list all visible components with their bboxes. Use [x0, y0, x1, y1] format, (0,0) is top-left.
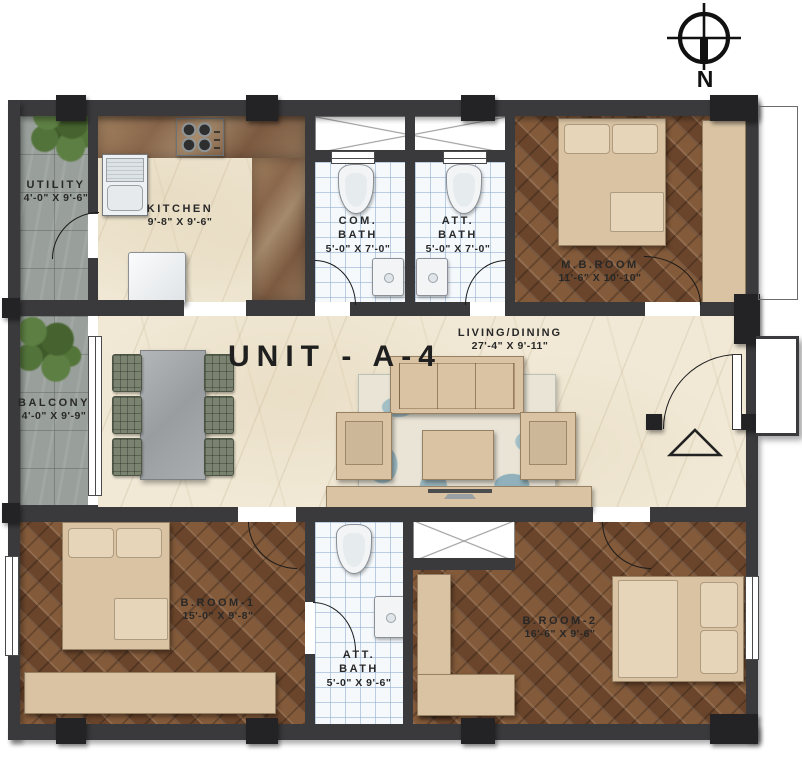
room-dims: 4'-0" X 9'-6": [10, 192, 102, 206]
mb-room-label: M.B.ROOM 11'-6" X 10'-10": [540, 258, 660, 286]
wall-column: [461, 718, 495, 744]
pillow: [564, 124, 610, 154]
wall-column: [56, 95, 86, 121]
dining-chair: [204, 396, 234, 434]
plant-icon: [10, 314, 84, 384]
dining-chair: [112, 396, 142, 434]
entry-arrow-icon: [666, 426, 724, 460]
wall: [8, 300, 98, 316]
room-dims: 9'-8" X 9'-6": [118, 216, 242, 230]
room-name: UTILITY: [10, 178, 102, 192]
room-name: B.ROOM-2: [505, 614, 615, 628]
room-name: BALCONY: [8, 396, 100, 410]
entry-door-leaf: [732, 354, 742, 430]
wall-column: [246, 718, 278, 744]
living-dining-label: LIVING/DINING 27'-4" X 9'-11": [430, 326, 590, 354]
wall: [246, 300, 306, 316]
window: [745, 576, 759, 660]
wall: [305, 522, 315, 602]
pillow: [116, 528, 162, 558]
wall: [505, 116, 515, 316]
wall-column: [246, 95, 278, 121]
wall: [515, 302, 645, 316]
pillow: [612, 124, 658, 154]
wash-basin-icon: [372, 258, 404, 296]
kitchen-label: KITCHEN 9'-8" X 9'-6": [118, 202, 242, 230]
wall: [88, 258, 98, 304]
wash-basin-icon: [374, 596, 406, 638]
dining-table: [140, 350, 206, 480]
window: [5, 556, 19, 656]
armchair: [520, 412, 576, 480]
exterior-projection: [758, 106, 798, 300]
wall: [650, 507, 746, 522]
dining-chair: [112, 438, 142, 476]
floor-plan: N UTILITY 4'-0" X 9'-6" KITCHEN 9'-8" X …: [0, 0, 802, 768]
pillow: [68, 528, 114, 558]
fridge-icon: [128, 252, 186, 304]
wall-column: [56, 718, 86, 744]
room-dims: 5'-0" X 7'-0": [313, 243, 403, 257]
pillow: [700, 630, 738, 674]
room-dims: 5'-0" X 7'-0": [413, 243, 503, 257]
wall-column: [461, 95, 495, 121]
window: [443, 151, 487, 164]
wall: [8, 724, 758, 740]
room-name: BATH: [413, 228, 503, 242]
balcony-label: BALCONY 4'-0" X 9'-9": [8, 396, 100, 424]
room-dims: 15'-0" X 9'-8": [158, 610, 278, 624]
dining-chair: [204, 438, 234, 476]
b-room-1-label: B.ROOM-1 15'-0" X 9'-8": [158, 596, 278, 624]
mb-wardrobe: [702, 120, 746, 304]
vent-shaft-bottom: [413, 520, 515, 562]
room-name: M.B.ROOM: [540, 258, 660, 272]
compass-north-label: N: [690, 66, 720, 93]
com-bath-label: COM. BATH 5'-0" X 7'-0": [313, 214, 403, 256]
wall: [98, 300, 184, 316]
wall: [350, 302, 470, 316]
room-dims: 16'-6" X 9'-6": [505, 628, 615, 642]
att-bath-top-label: ATT. BATH 5'-0" X 7'-0": [413, 214, 503, 256]
coffee-table: [422, 430, 494, 480]
room-dims: 4'-0" X 9'-9": [8, 410, 100, 424]
room-dims: 5'-0" X 9'-6": [309, 677, 409, 691]
room-name: KITCHEN: [118, 202, 242, 216]
wall: [18, 507, 238, 522]
stove-icon: [176, 118, 224, 156]
wall-column: [710, 95, 758, 121]
wall-column: [2, 298, 20, 318]
br1-wardrobe: [24, 672, 276, 714]
wall-column: [646, 414, 662, 430]
dining-chair: [112, 354, 142, 392]
room-dims: 11'-6" X 10'-10": [540, 272, 660, 286]
wall: [515, 507, 593, 522]
room-name: BATH: [309, 662, 409, 676]
wall: [313, 507, 515, 522]
armchair-cushion: [345, 421, 383, 465]
b-room-2-label: B.ROOM-2 16'-6" X 9'-6": [505, 614, 615, 642]
room-name: COM.: [313, 214, 403, 228]
room-dims: 27'-4" X 9'-11": [430, 340, 590, 354]
armchair-cushion: [529, 421, 567, 465]
wash-basin-icon: [416, 258, 448, 296]
att-bath-bottom-label: ATT. BATH 5'-0" X 9'-6": [309, 648, 409, 690]
room-name: ATT.: [309, 648, 409, 662]
wall: [18, 100, 758, 116]
room-name: ATT.: [413, 214, 503, 228]
pillow: [700, 582, 738, 628]
tv-stand: [444, 494, 476, 499]
armchair: [336, 412, 392, 480]
utility-label: UTILITY 4'-0" X 9'-6": [10, 178, 102, 206]
wall-column: [2, 503, 20, 523]
duvet: [618, 580, 678, 678]
br2-wardrobe-horizontal: [417, 674, 515, 716]
wall-column: [710, 714, 758, 744]
window: [331, 151, 375, 164]
unit-title: UNIT - A-4: [228, 340, 442, 374]
tv-icon: [428, 489, 492, 493]
wall: [413, 558, 515, 570]
compass-icon: [664, 2, 744, 74]
room-name: BATH: [313, 228, 403, 242]
room-name: B.ROOM-1: [158, 596, 278, 610]
kitchen-counter-right: [252, 158, 305, 302]
room-name: LIVING/DINING: [430, 326, 590, 340]
entry-landing: [756, 336, 799, 436]
wall: [403, 522, 413, 724]
blanket: [610, 192, 664, 232]
